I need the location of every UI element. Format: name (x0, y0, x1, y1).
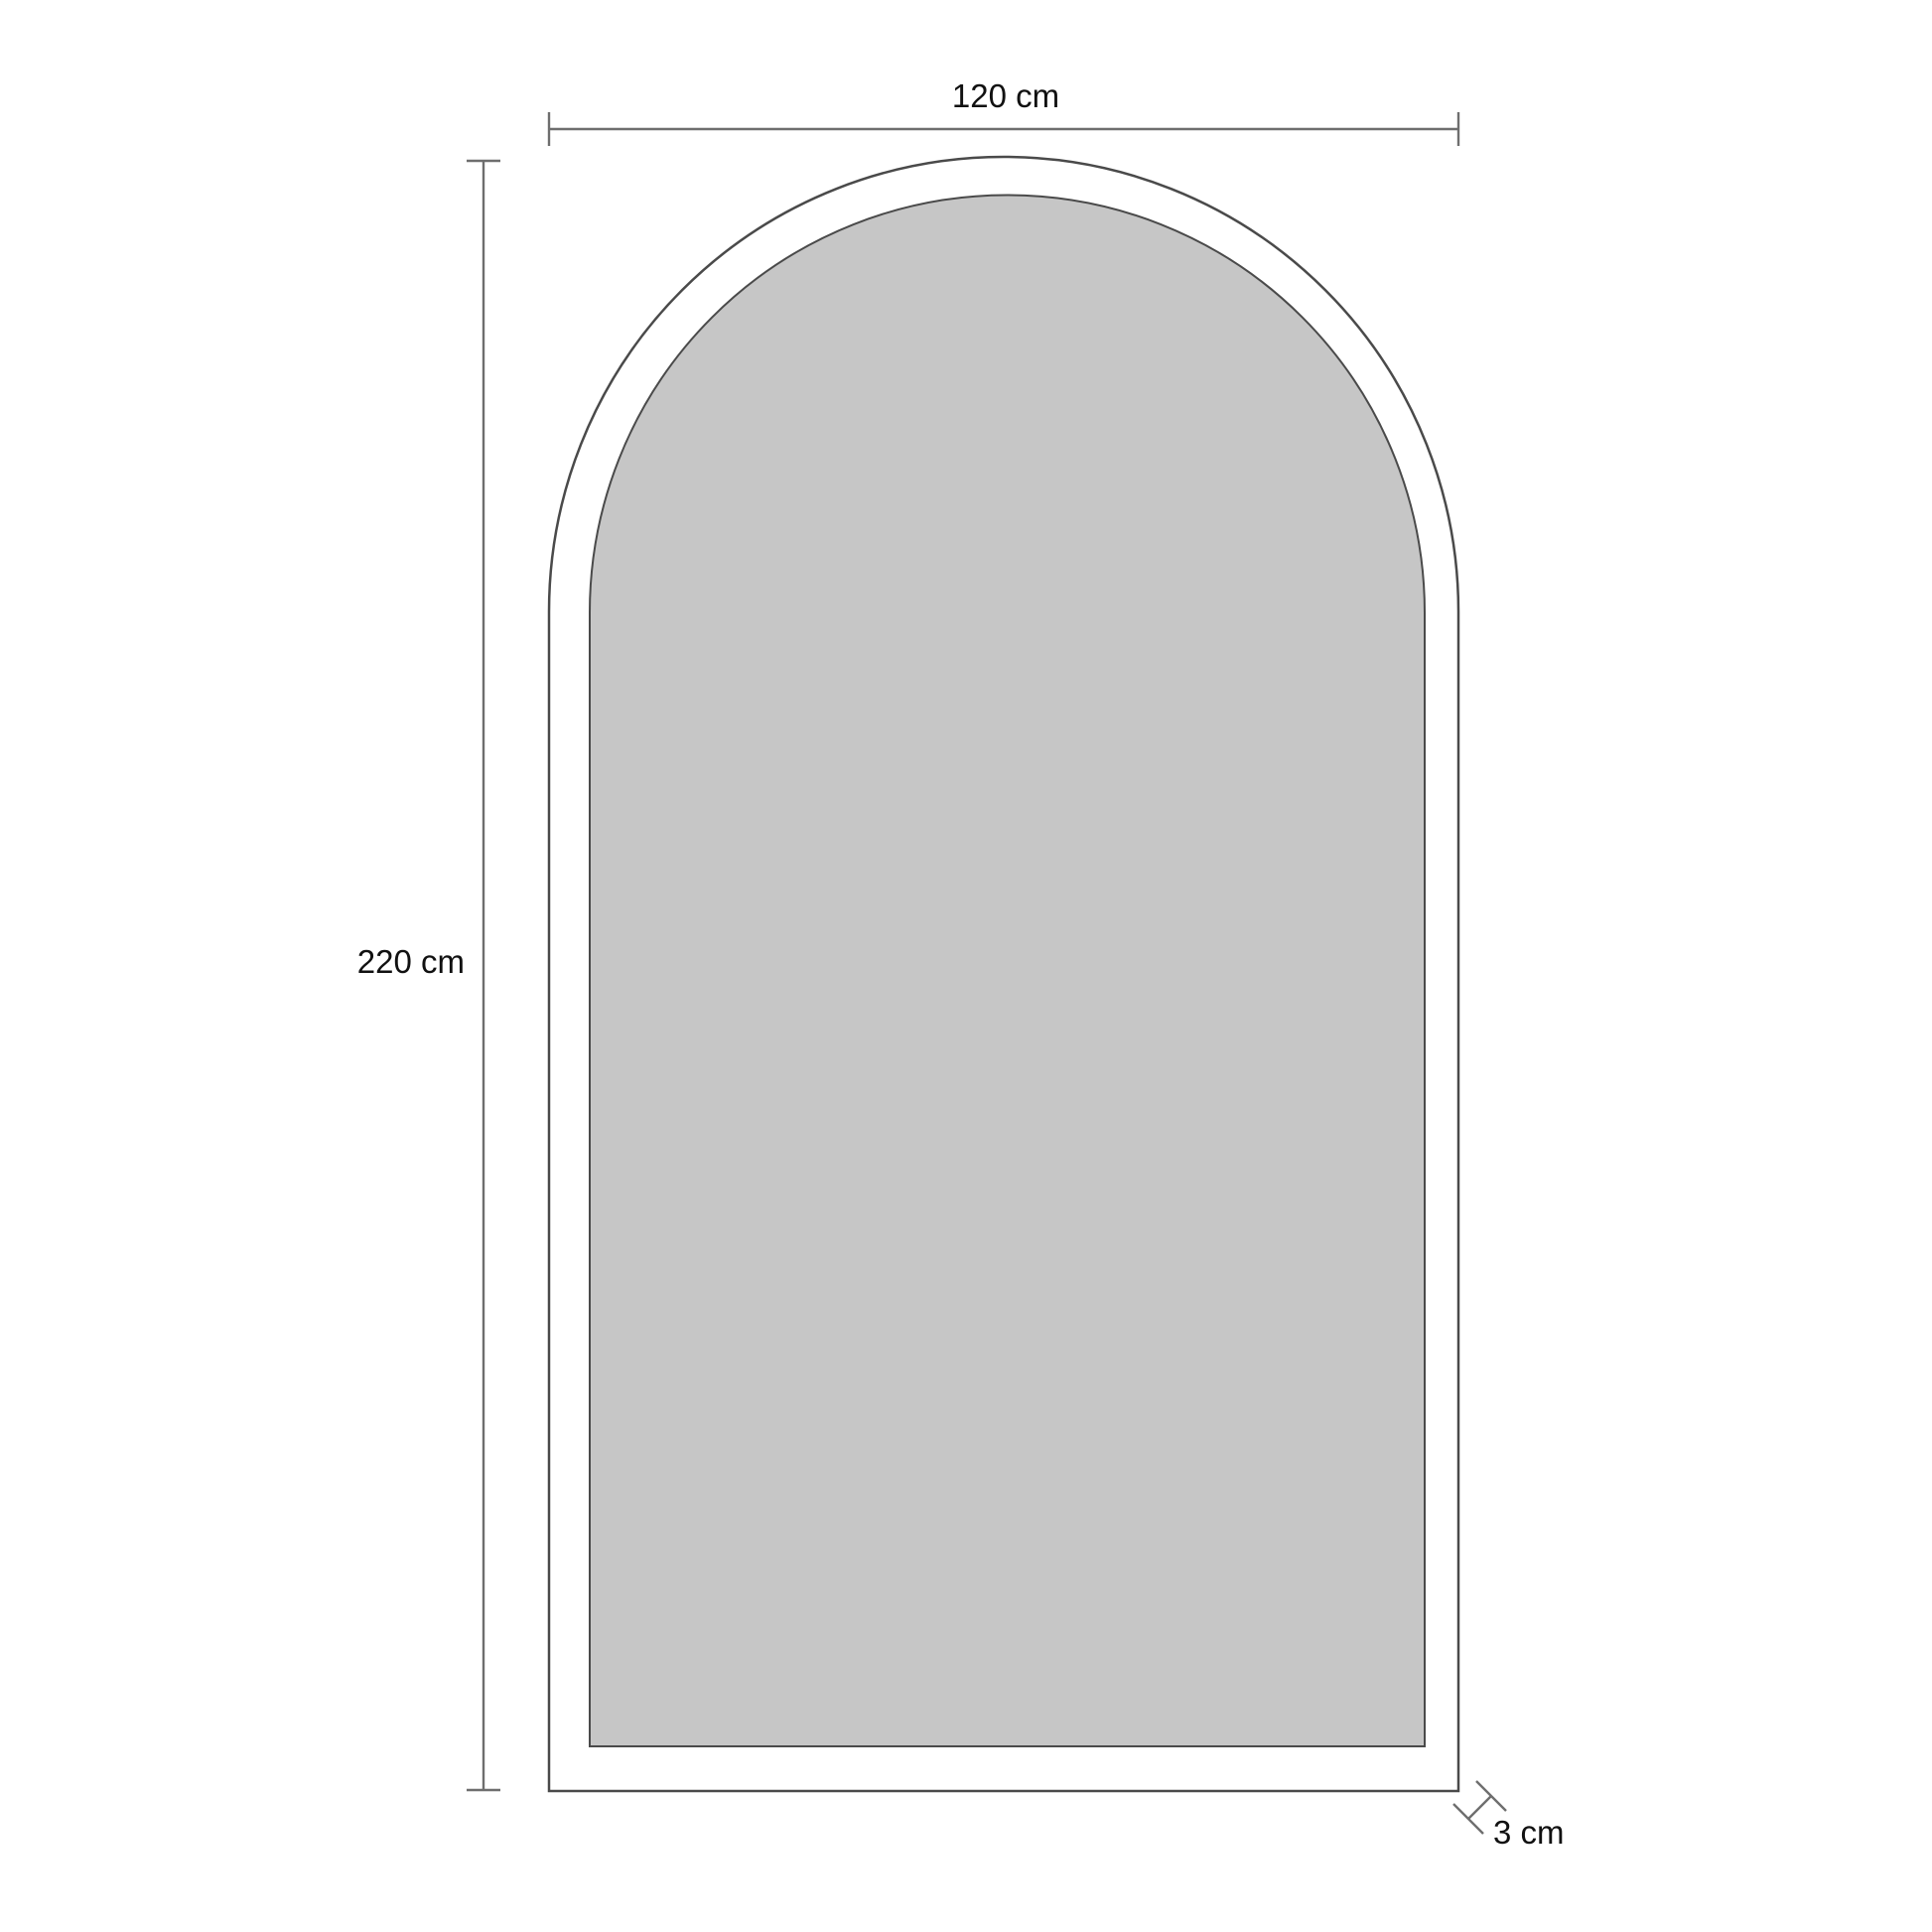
arch-inner-panel (590, 195, 1425, 1746)
width-dimension-label: 120 cm (952, 77, 1059, 114)
frame-thickness-dimension: 3 cm (1453, 1781, 1565, 1851)
height-dimension: 220 cm (357, 161, 500, 1790)
width-dimension: 120 cm (549, 77, 1458, 146)
frame-thickness-label: 3 cm (1493, 1814, 1565, 1851)
height-dimension-label: 220 cm (357, 943, 465, 980)
frame-thickness-connector (1468, 1796, 1491, 1819)
dimension-diagram: 120 cm 220 cm 3 cm (0, 0, 1932, 1932)
